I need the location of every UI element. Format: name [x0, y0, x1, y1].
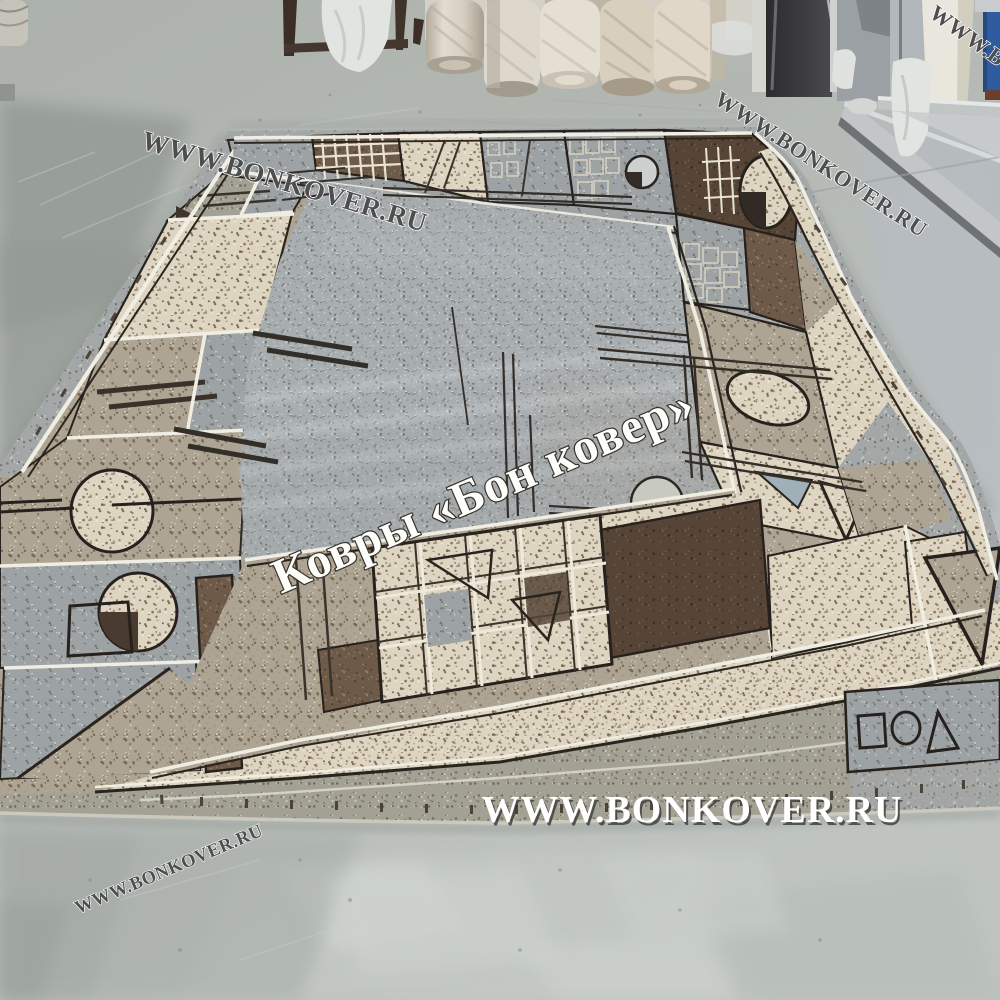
svg-text:WWW.BONKOVER.RU: WWW.BONKOVER.RU: [481, 789, 902, 831]
